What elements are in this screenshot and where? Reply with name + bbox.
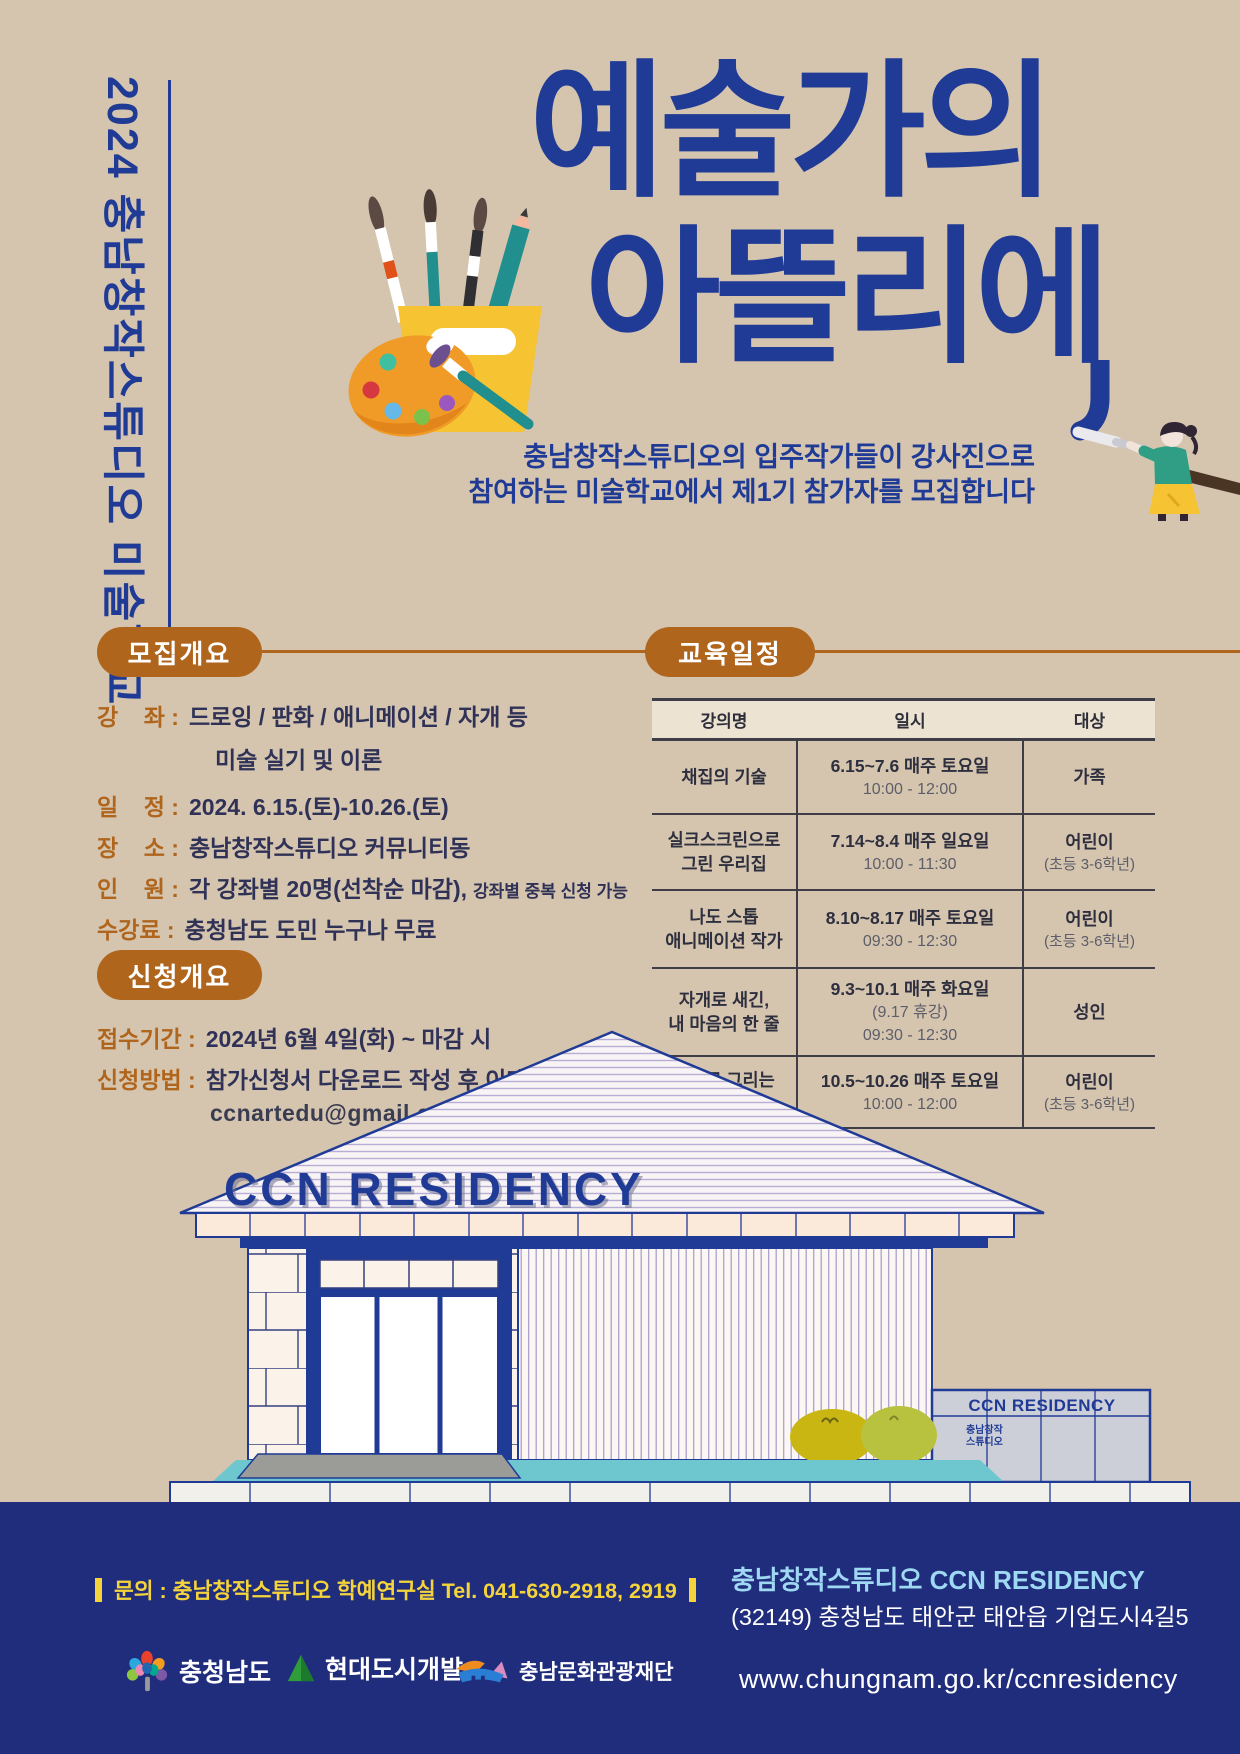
logo-chungcheongnamdo: 충청남도: [124, 1648, 271, 1694]
paintbrush-icon: [365, 195, 409, 323]
sign-sub-text2: 스튜디오: [966, 1435, 1003, 1448]
hyundai-triangle-logo-icon: [286, 1650, 316, 1686]
residency-building-illustration: CCN RESIDENCY CCN RESIDENCY CCN RESIDENC…: [0, 1020, 1240, 1504]
course-value-line2: 미술 실기 및 이론: [215, 741, 528, 775]
course-date: 9.3~10.1 매주 화요일: [798, 977, 1022, 1001]
schedule-section-heading: 교육일정: [645, 627, 815, 677]
org-address: (32149) 충청남도 태안군 태안읍 기업도시4길5: [731, 1598, 1189, 1632]
page-title-line2: 아뜰리에: [584, 224, 1105, 375]
side-divider-line: [168, 80, 171, 640]
org-website-url: www.chungnam.go.kr/ccnresidency: [739, 1664, 1178, 1695]
building-eave: [196, 1213, 1014, 1237]
dates-label: 일 정 :: [97, 794, 179, 820]
course-time: 10:00 - 11:30: [798, 853, 1022, 876]
subtitle-line1: 충남창작스튜디오의 입주작가들이 강사진으로: [468, 440, 1035, 475]
divider-bar-icon: [95, 1578, 102, 1602]
bush: [861, 1406, 937, 1464]
logo-label: 충남문화관광재단: [519, 1656, 674, 1686]
schedule-table-header: 강의명 일시 대상: [652, 698, 1155, 741]
contact-text: 문의 : 충남창작스튜디오 학예연구실 Tel. 041-630-2918, 2…: [114, 1574, 677, 1605]
course-target: 어린이: [1024, 907, 1155, 931]
table-row: 나도 스톱 애니메이션 작가 8.10~8.17 매주 토요일 09:30 - …: [652, 891, 1155, 969]
paintbrush-icon: [423, 189, 443, 322]
info-row-course: 강 좌 :드로잉 / 판화 / 애니메이션 / 자개 등 미술 실기 및 이론: [97, 698, 528, 775]
course-name-line2: 애니메이션 작가: [652, 929, 796, 953]
painter-figure-illustration: [1040, 360, 1240, 522]
sign-title-text: CCN RESIDENCY: [968, 1396, 1115, 1415]
logo-label: 현대도시개발: [325, 1650, 463, 1686]
place-value: 충남창작스튜디오 커뮤니티동: [189, 835, 470, 861]
capacity-value: 각 강좌별 20명(선착순 마감),: [189, 876, 467, 902]
course-target: 가족: [1024, 765, 1155, 789]
capacity-note: 강좌별 중복 신청 가능: [473, 882, 628, 901]
info-row-dates: 일 정 :2024. 6.15.(토)-10.26.(토): [97, 788, 449, 822]
course-time: 10:00 - 12:00: [798, 778, 1022, 801]
glass-door: [320, 1296, 498, 1454]
page-title-line1: 예술가의: [529, 58, 1050, 209]
logo-hyundai-city-dev: 현대도시개발: [286, 1650, 463, 1686]
sign-sub-text1: 충남창작: [966, 1423, 1004, 1436]
big-brush-icon: [1078, 432, 1116, 442]
course-time: 09:30 - 12:30: [798, 930, 1022, 953]
fee-value: 충청남도 도민 누구나 무료: [185, 917, 437, 943]
info-row-capacity: 인 원 :각 강좌별 20명(선착순 마감),강좌별 중복 신청 가능: [97, 870, 628, 904]
course-target: 어린이: [1024, 830, 1155, 854]
course-name: 자개로 새긴,: [652, 988, 796, 1012]
recruit-section-heading: 모집개요: [97, 627, 262, 677]
course-date: 8.10~8.17 매주 토요일: [798, 906, 1022, 930]
logo-culture-foundation: 충남문화관광재단: [452, 1654, 674, 1688]
course-name: 채집의 기술: [652, 765, 796, 789]
course-date: 6.15~7.6 매주 토요일: [798, 754, 1022, 778]
table-row: 채집의 기술 6.15~7.6 매주 토요일 10:00 - 12:00 가족: [652, 741, 1155, 815]
course-target-detail: (초등 3-6학년): [1024, 931, 1155, 952]
pencil-icon: [486, 205, 535, 321]
course-date: 7.14~8.4 매주 일요일: [798, 829, 1022, 853]
info-row-fee: 수강료 :충청남도 도민 누구나 무료: [97, 911, 436, 945]
info-row-place: 장 소 :충남창작스튜디오 커뮤니티동: [97, 829, 470, 863]
divider-bar-icon: [689, 1578, 696, 1602]
column-header-course: 강의명: [652, 707, 796, 732]
column-header-datetime: 일시: [796, 707, 1024, 732]
table-row: 실크스크린으로 그린 우리집 7.14~8.4 매주 일요일 10:00 - 1…: [652, 815, 1155, 891]
logo-label: 충청남도: [179, 1653, 271, 1689]
painted-stroke: [1080, 360, 1100, 431]
course-label: 강 좌 :: [97, 704, 179, 730]
chungnam-province-logo-icon: [124, 1648, 170, 1694]
course-name: 실크스크린으로: [652, 828, 796, 852]
fee-label: 수강료 :: [97, 917, 175, 943]
place-label: 장 소 :: [97, 835, 179, 861]
org-name: 충남창작스튜디오 CCN RESIDENCY: [731, 1560, 1145, 1597]
paintbrush-icon: [461, 197, 489, 322]
contact-line: 문의 : 충남창작스튜디오 학예연구실 Tel. 041-630-2918, 2…: [95, 1574, 696, 1605]
side-year-label: 2024 충남창작스튜디오 미술학교: [95, 76, 157, 706]
course-name-line2: 그린 우리집: [652, 852, 796, 876]
subtitle-line2: 참여하는 미술학교에서 제1기 참가자를 모집합니다: [468, 475, 1035, 510]
column-header-target: 대상: [1024, 707, 1155, 732]
door-mat: [238, 1454, 520, 1478]
dates-value: 2024. 6.15.(토)-10.26.(토): [189, 794, 449, 820]
apply-section-heading: 신청개요: [97, 950, 262, 1000]
sidewalk: [170, 1482, 1190, 1503]
capacity-label: 인 원 :: [97, 876, 179, 902]
roof-sign-text: CCN RESIDENCY: [224, 1163, 644, 1215]
culture-foundation-logo-icon: [452, 1654, 510, 1688]
paint-supplies-illustration: [330, 180, 570, 450]
poster: 2024 충남창작스튜디오 미술학교 예술가의 아뜰리에: [0, 0, 1240, 1754]
course-target-detail: (초등 3-6학년): [1024, 854, 1155, 875]
course-name: 나도 스톱: [652, 905, 796, 929]
course-value: 드로잉 / 판화 / 애니메이션 / 자개 등: [189, 704, 528, 730]
subtitle: 충남창작스튜디오의 입주작가들이 강사진으로 참여하는 미술학교에서 제1기 참…: [468, 440, 1035, 510]
